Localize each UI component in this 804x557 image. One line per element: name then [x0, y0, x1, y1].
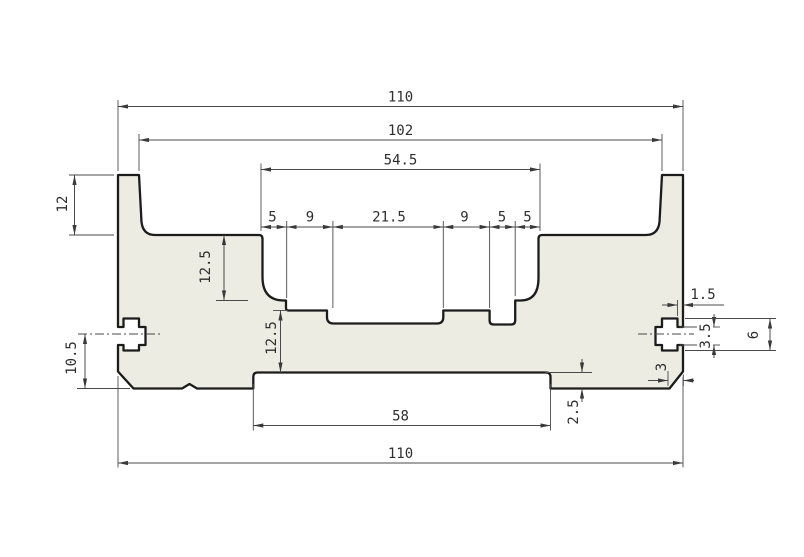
dim-label-slot-lip-depth: 1.5 [690, 287, 715, 303]
dim-label-channel: 5 [498, 210, 506, 226]
dim-recess-width: 58 [253, 384, 550, 431]
dim-label-right-floor: 9 [460, 210, 468, 226]
dim-label-recess-depth: 2.5 [566, 399, 582, 424]
dim-label-bottom-overall: 110 [388, 446, 413, 462]
technical-drawing: 110 102 54.5 5 9 21.5 9 5 5 [0, 0, 804, 557]
dim-label-right-wall: 5 [523, 210, 531, 226]
dim-pocket-segments: 5 9 21.5 9 5 5 [261, 210, 540, 309]
dim-slot-mouth-height: 3.5 [680, 314, 721, 358]
dim-label-pocket-depth: 12.5 [198, 250, 214, 284]
dim-label-slot-center-to-bottom: 10.5 [64, 341, 80, 375]
dim-label-center: 21.5 [372, 210, 406, 226]
dim-label-left-wall: 5 [268, 210, 276, 226]
dim-label-chamfer: 3 [654, 363, 670, 371]
dim-label-slot-height: 6 [746, 331, 762, 339]
dim-label-pocket-width: 54.5 [384, 153, 418, 169]
dim-label-slot-mouth-height: 3.5 [698, 323, 714, 348]
dim-label-between-tabs: 102 [388, 123, 413, 139]
dim-label-left-floor: 9 [306, 210, 314, 226]
dim-label-tab-height: 12 [55, 196, 71, 213]
dim-label-top-overall: 110 [388, 90, 413, 106]
drawing-canvas: 110 102 54.5 5 9 21.5 9 5 5 [0, 0, 804, 557]
dim-label-recess-width: 58 [392, 409, 409, 425]
dim-tab-height: 12 [55, 175, 114, 235]
dim-label-lower-step-depth: 12.5 [264, 321, 280, 355]
